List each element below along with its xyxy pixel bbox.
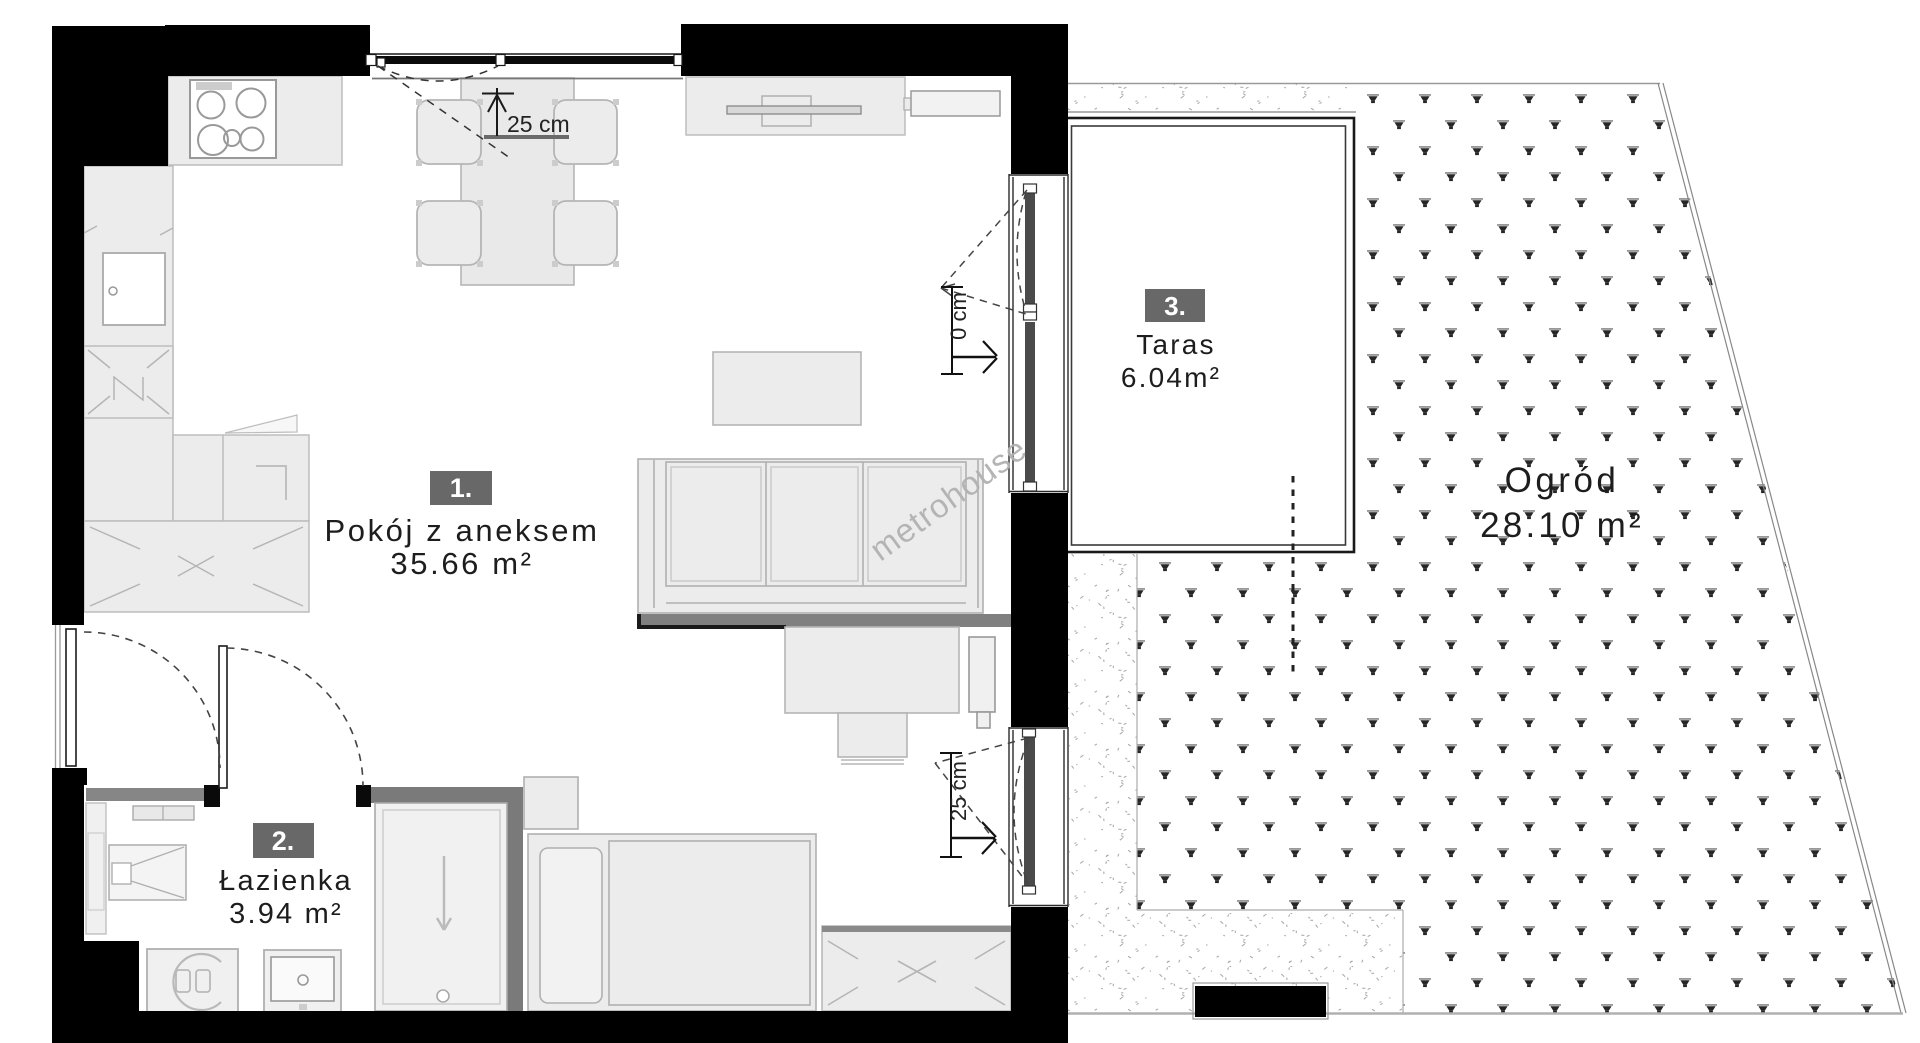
svg-text:1.: 1. bbox=[450, 473, 473, 503]
svg-text:3.94 m²: 3.94 m² bbox=[229, 898, 343, 930]
svg-text:Taras: Taras bbox=[1136, 329, 1215, 360]
svg-text:25 cm: 25 cm bbox=[946, 761, 971, 821]
svg-text:Łazienka: Łazienka bbox=[219, 865, 353, 897]
svg-text:3.: 3. bbox=[1164, 291, 1186, 321]
svg-text:28.10 m²: 28.10 m² bbox=[1480, 506, 1644, 545]
svg-text:0 cm: 0 cm bbox=[946, 292, 971, 340]
svg-text:2.: 2. bbox=[272, 826, 295, 856]
svg-text:Pokój z aneksem: Pokój z aneksem bbox=[324, 513, 599, 548]
svg-text:Ogród: Ogród bbox=[1505, 461, 1620, 500]
svg-text:6.04m²: 6.04m² bbox=[1121, 362, 1221, 393]
svg-text:25 cm: 25 cm bbox=[507, 111, 570, 137]
svg-text:35.66 m²: 35.66 m² bbox=[390, 546, 533, 581]
